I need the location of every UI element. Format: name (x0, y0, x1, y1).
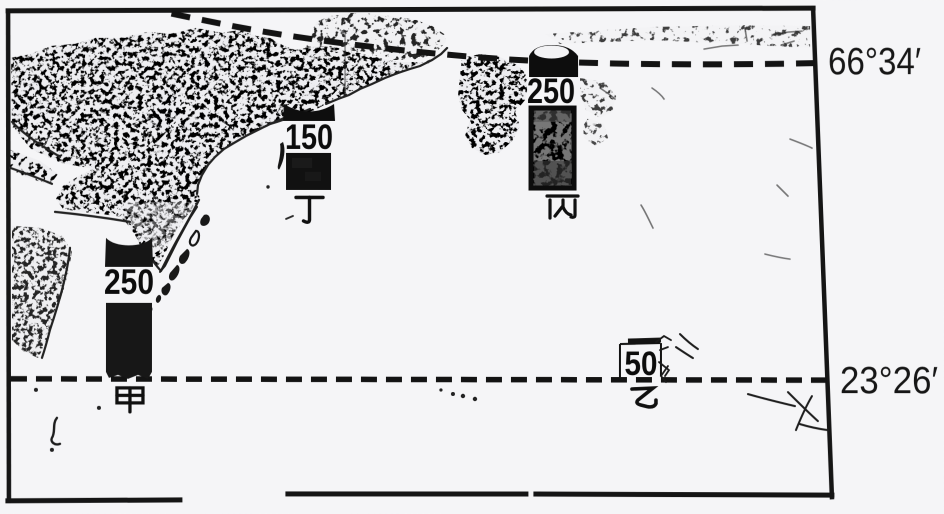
svg-text:23°26′: 23°26′ (840, 360, 938, 402)
svg-text:250: 250 (527, 72, 575, 111)
svg-text:150: 150 (285, 118, 333, 157)
svg-text:66°34′: 66°34′ (828, 41, 921, 83)
svg-text:50: 50 (624, 345, 657, 383)
svg-text:250: 250 (104, 263, 154, 302)
